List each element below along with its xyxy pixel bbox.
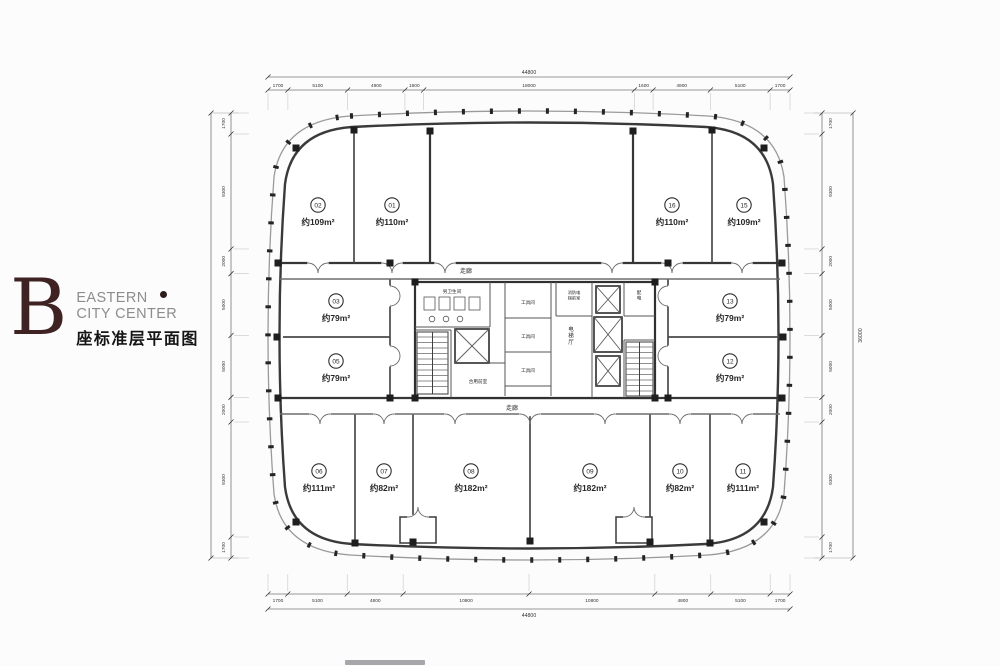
brand-dot-icon [160,291,167,298]
structural-column [647,539,654,546]
room-number: 03 [332,298,340,305]
structural-column [779,260,786,267]
structural-column [410,539,417,546]
dim-value: 1700 [273,598,284,604]
room-area: 约182m² [573,483,606,493]
dim-value: 1700 [828,542,834,553]
platform-left [400,517,436,543]
dim-value: 4900 [676,83,687,89]
room-area: 约110m² [656,217,689,227]
structural-column [652,279,659,286]
room-area: 约111m² [303,483,335,493]
dim-value: 1700 [775,598,786,604]
room-area: 约82m² [666,483,695,493]
plan-title: 座标准层平面图 [76,325,199,349]
structural-column [351,127,358,134]
structural-column [387,395,394,402]
room-number: 02 [314,202,322,209]
room-number: 07 [380,468,388,475]
room-area: 约79m² [716,313,745,323]
dimension-right: 1700930020005000500020009300170036000 [804,111,864,561]
structural-column [427,128,434,135]
brand-block: B EASTERN CITY CENTER 座标准层平面图 [10,276,199,349]
dim-value: 1700 [273,83,284,89]
dim-value: 10800 [459,598,473,604]
core-label-fire-elevator-lobby: 消防电梯前室 [568,289,581,302]
room-number: 05 [332,358,340,365]
dim-value: 5100 [312,83,323,89]
structural-column [665,395,672,402]
dim-value: 9300 [828,474,834,485]
structural-column [275,395,282,402]
room-number: 11 [740,468,747,475]
core-label-corridor-top: 走廊 [460,267,472,275]
brand-line2: CITY CENTER [76,306,199,322]
cropped-watermark [345,660,425,665]
brand-letter: B [10,276,67,342]
staircase-icon [626,342,653,396]
dimension-left: 17009300200050005000200093001700 [209,111,250,561]
structural-column [352,540,359,547]
room-area: 约182m² [454,483,487,493]
floor-plan-page: 01约110m²02约109m²03约79m²05约79m²06约111m²07… [0,0,1000,666]
dim-value: 5100 [735,83,746,89]
room-area: 约109m² [301,217,334,227]
structural-column [665,260,672,267]
room-area: 约109m² [727,217,760,227]
dim-value: 9300 [221,186,227,197]
dimension-top: 1700510049001600180001600490051001700448… [266,70,793,110]
dim-value: 5000 [828,299,834,310]
dim-value: 1700 [775,83,786,89]
dim-value: 5000 [221,361,227,372]
core-label-corridor-bottom: 走廊 [506,404,518,412]
dim-value: 1700 [221,118,227,129]
dim-value: 9300 [828,186,834,197]
room-number: 01 [388,202,396,209]
core-label-elevator-hall: 电梯厅 [568,325,574,346]
structural-column [709,127,716,134]
room-area: 约79m² [322,313,351,323]
room-area: 约110m² [376,217,409,227]
dim-total: 36000 [858,328,864,343]
dim-value: 1700 [828,118,834,129]
structural-column [707,540,714,547]
structural-column [630,128,637,135]
structural-column [412,395,419,402]
room-area: 约79m² [716,373,745,383]
dim-value: 5000 [828,361,834,372]
structural-column [412,279,419,286]
dim-value: 1600 [638,83,649,89]
dim-value: 2000 [221,256,227,267]
elevator-shaft-icon [594,317,622,352]
room-number: 15 [740,202,748,209]
structural-column [652,395,659,402]
room-area: 约79m² [322,373,351,383]
elevator-shaft-icon [596,356,620,386]
brand-line1: EASTERN [76,290,147,306]
core-label-tool-room-1: 工具间 [521,299,535,306]
structural-column [779,395,786,402]
dim-value: 4900 [371,83,382,89]
dim-value: 5000 [221,299,227,310]
room-number: 13 [726,298,734,305]
dim-value: 2000 [221,404,227,415]
structural-column [274,334,281,341]
elevator-shaft-icon [596,286,620,313]
dim-value: 1600 [409,83,420,89]
structural-column [293,145,300,152]
dim-value: 10800 [585,598,599,604]
staircase-icon [417,332,448,394]
room-number: 12 [726,358,734,365]
structural-column [387,260,394,267]
dim-total: 44800 [522,70,537,76]
dimension-bottom: 170051004800108001080048005100170044800 [266,574,793,619]
dim-value: 1700 [221,542,227,553]
room-number: 08 [467,468,475,475]
dim-value: 5100 [312,598,323,604]
dim-value: 2000 [828,404,834,415]
room-area: 约82m² [370,483,399,493]
brand-text: EASTERN CITY CENTER 座标准层平面图 [76,276,199,349]
room-number: 10 [676,468,684,475]
elevator-shaft-icon [455,329,489,363]
dim-value: 5100 [735,598,746,604]
dim-value: 4800 [677,598,688,604]
core-label-tool-room-3: 工具间 [521,367,535,374]
room-number: 06 [315,468,323,475]
core-label-power-room: 配电 [637,290,642,301]
dim-value: 4800 [370,598,381,604]
structural-column [293,519,300,526]
core-label-shared-lobby: 合用前室 [469,378,488,385]
brand-line1-row: EASTERN [76,290,199,306]
room-number: 09 [586,468,594,475]
dim-value: 2000 [828,256,834,267]
core-label-tool-room-2: 工具间 [521,333,535,340]
structural-column [780,334,787,341]
structural-column [761,519,768,526]
structural-column [275,260,282,267]
dim-total: 44800 [522,613,537,619]
room-number: 16 [668,202,676,209]
structural-column [527,538,534,545]
dim-value: 9300 [221,474,227,485]
dim-value: 18000 [522,83,536,89]
room-area: 约111m² [727,483,759,493]
core-label-mens-toilet: 男卫生间 [443,288,462,295]
structural-column [761,145,768,152]
